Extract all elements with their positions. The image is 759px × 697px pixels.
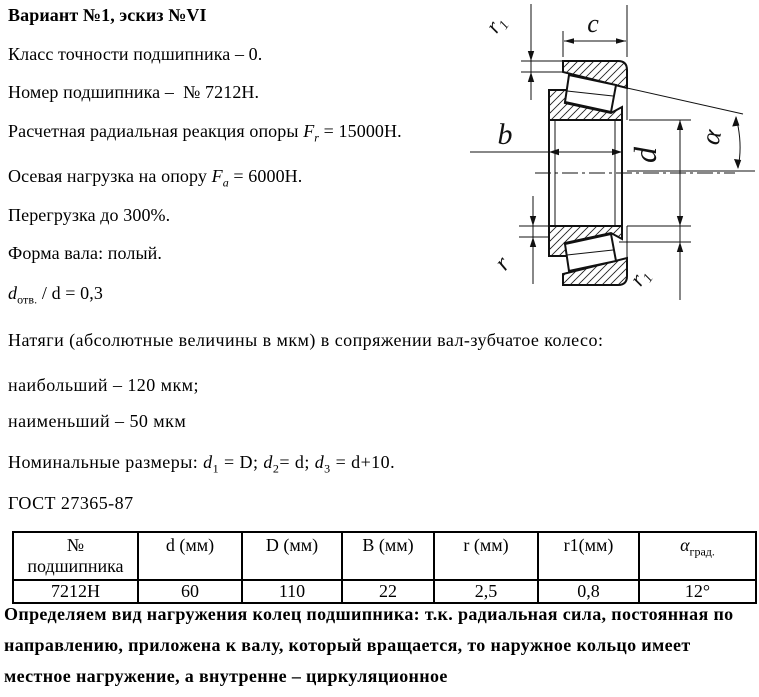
dim-label-d: d: [627, 146, 663, 163]
dim-alpha: α: [695, 116, 741, 169]
nominal-sizes: Номинальные размеры: d1 = D; d2= d; d3 =…: [8, 452, 395, 473]
cell-alpha: 12°: [639, 580, 756, 603]
dim-b: b: [470, 118, 622, 155]
page-title: Вариант №1, эскиз №VI: [8, 5, 207, 26]
interference-min: наименьший – 50 мкм: [8, 411, 186, 432]
cell-B: 22: [342, 580, 434, 603]
spec-number: Номер подшипника – № 7212Н.: [8, 82, 259, 103]
gost-standard: ГОСТ 27365-87: [8, 493, 134, 514]
bearing-drawing: c r1 b d r1 α: [455, 0, 759, 312]
cell-D: 110: [242, 580, 342, 603]
spec-overload: Перегрузка до 300%.: [8, 205, 170, 226]
dim-label-alpha: α: [695, 126, 728, 148]
table-header-row: №подшипника d (мм) D (мм) B (мм) r (мм) …: [13, 532, 756, 580]
header-r1: r1(мм): [538, 532, 639, 580]
cell-bearing-no: 7212Н: [13, 580, 138, 603]
raceway-slant-line: [627, 88, 743, 114]
dim-label-r1-bottom: r1: [624, 263, 657, 292]
interference-title: Натяги (абсолютные величины в мкм) в соп…: [8, 330, 603, 351]
dim-c: c: [563, 5, 627, 57]
header-D: D (мм): [242, 532, 342, 580]
spec-accuracy: Класс точности подшипника – 0.: [8, 44, 262, 65]
dim-label-c: c: [587, 9, 599, 38]
dim-r1-top: r1: [480, 4, 563, 100]
dim-label-b: b: [498, 118, 513, 151]
conclusion-paragraph: Определяем вид нагружения колец подшипни…: [4, 604, 734, 697]
spec-radial-load: Расчетная радиальная реакция опоры Fr = …: [8, 121, 402, 142]
header-r: r (мм): [434, 532, 538, 580]
dim-r: r: [490, 196, 549, 284]
cell-r1: 0,8: [538, 580, 639, 603]
header-B: B (мм): [342, 532, 434, 580]
interference-max: наибольший – 120 мкм;: [8, 375, 199, 396]
table-data-row: 7212Н 60 110 22 2,5 0,8 12°: [13, 580, 756, 603]
header-bearing-no: №подшипника: [13, 532, 138, 580]
header-d: d (мм): [138, 532, 242, 580]
header-alpha: αград.: [639, 532, 756, 580]
dim-label-r1-top: r1: [480, 10, 513, 39]
cell-d: 60: [138, 580, 242, 603]
spec-axial-load: Осевая нагрузка на опору Fa = 6000Н.: [8, 166, 302, 187]
spec-hole-ratio: dотв. / d = 0,3: [8, 283, 103, 304]
document-page: { "title": "Вариант №1, эскиз №VI", "spe…: [0, 0, 759, 684]
dim-label-r: r: [490, 251, 516, 275]
cell-r: 2,5: [434, 580, 538, 603]
spec-shaft-form: Форма вала: полый.: [8, 243, 162, 264]
bearing-dimensions-table: №подшипника d (мм) D (мм) B (мм) r (мм) …: [12, 531, 757, 604]
